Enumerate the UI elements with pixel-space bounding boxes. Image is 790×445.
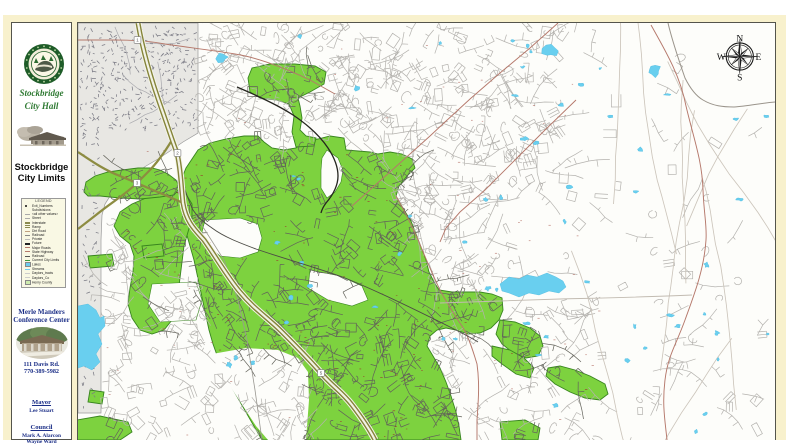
svg-text:E: E — [755, 53, 761, 63]
svg-text:S: S — [737, 74, 742, 84]
svg-text:N: N — [736, 34, 743, 44]
svg-text:W: W — [717, 53, 726, 63]
